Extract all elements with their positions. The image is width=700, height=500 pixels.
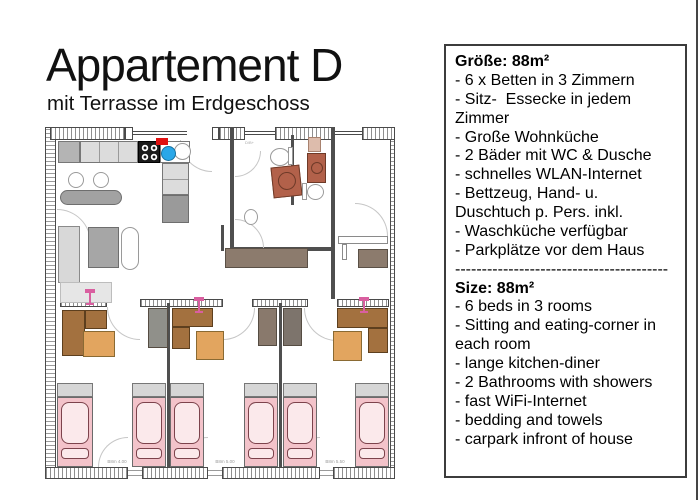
hand-basin xyxy=(244,209,258,225)
bathroom-wall xyxy=(331,127,335,299)
divider: ---------------------------------------- xyxy=(455,261,676,280)
wall xyxy=(245,131,275,135)
desk xyxy=(358,249,388,268)
door-arc xyxy=(235,151,261,177)
shower-icon xyxy=(270,165,302,199)
coffee-table xyxy=(88,227,119,268)
fridge xyxy=(162,195,189,223)
bed-symbol xyxy=(57,383,93,467)
plant-icon xyxy=(358,297,370,313)
window xyxy=(333,467,395,479)
door-threshold xyxy=(128,470,142,476)
wall-right xyxy=(390,127,395,479)
english-list-item: - bedding and towels xyxy=(455,412,676,431)
window xyxy=(50,127,125,140)
dimension-label: B8m 5.00 xyxy=(203,459,247,464)
wardrobe xyxy=(258,308,277,346)
bathroom-sink xyxy=(308,137,321,152)
english-list-item: - 6 beds in 3 rooms xyxy=(455,298,676,317)
window xyxy=(142,467,208,479)
apartment-listing: Appartement D mit Terrasse im Erdgeschos… xyxy=(0,0,700,500)
bedroom-divider-wall xyxy=(279,303,282,467)
english-list-item: - 2 Bathrooms with showers xyxy=(455,374,676,393)
wall xyxy=(332,131,362,135)
bathroom-wall xyxy=(230,127,234,251)
corner-bench xyxy=(172,327,190,349)
corridor-wall xyxy=(221,225,224,251)
floor-plan: D/B+ B8m 4.00 B8m 5.00 B8m 5.50 xyxy=(45,127,395,479)
german-list-item: - Bettzeug, Hand- u. Duschtuch p. Pers. … xyxy=(455,185,676,223)
desk xyxy=(225,248,308,268)
washbasin-icon xyxy=(161,146,176,161)
corner-bench xyxy=(368,328,388,353)
german-list-item: - Waschküche verfügbar xyxy=(455,223,676,242)
toilet-icon xyxy=(270,148,290,166)
chair xyxy=(93,172,109,188)
english-list-item: - Sitting and eating-corner in each room xyxy=(455,317,676,355)
bed-symbol xyxy=(283,383,317,467)
german-list-item: - 2 Bäder mit WC & Dusche xyxy=(455,147,676,166)
bed-symbol xyxy=(170,383,204,467)
german-list-item: - Sitz- Essecke in jedem Zimmer xyxy=(455,91,676,129)
table xyxy=(196,331,224,360)
corner-bench xyxy=(85,310,107,329)
page-title: Appartement D xyxy=(46,42,342,88)
kitchen-counter xyxy=(58,141,80,163)
window xyxy=(362,127,395,140)
side-table xyxy=(121,227,139,270)
bathroom-label: D/B+ xyxy=(245,140,254,145)
sofa xyxy=(58,226,80,283)
window xyxy=(222,467,320,479)
kitchen-cabinets xyxy=(80,141,138,163)
english-heading: Size: 88m² xyxy=(455,280,676,299)
info-panel: Größe: 88m² - 6 x Betten in 3 Zimmern - … xyxy=(444,44,687,478)
plant-icon xyxy=(193,297,205,313)
wardrobe xyxy=(283,308,302,346)
door-threshold xyxy=(320,470,333,476)
table xyxy=(333,331,362,361)
wall-left xyxy=(45,127,56,479)
wall-post xyxy=(125,127,133,140)
corner-bench xyxy=(62,310,85,356)
bed-symbol xyxy=(132,383,166,467)
window xyxy=(275,127,332,140)
english-list-item: - lange kitchen-diner xyxy=(455,355,676,374)
english-list-item: - fast WiFi-Internet xyxy=(455,393,676,412)
english-list-item: - carpark infront of house xyxy=(455,431,676,450)
german-list-item: - schnelles WLAN-Internet xyxy=(455,166,676,185)
chair xyxy=(68,172,84,188)
german-list-item: - 6 x Betten in 3 Zimmern xyxy=(455,72,676,91)
door-threshold xyxy=(208,470,222,476)
console-table xyxy=(338,236,388,244)
sink-basin xyxy=(174,143,191,160)
page-subtitle: mit Terrasse im Erdgeschoss xyxy=(47,92,310,116)
dimension-label: B8m 4.00 xyxy=(95,459,139,464)
toilet-tank xyxy=(288,147,293,165)
window xyxy=(45,467,128,479)
faucet-icon xyxy=(156,138,168,145)
door-arc xyxy=(355,203,388,236)
console-table-leg xyxy=(342,244,347,260)
bedroom-door-arc xyxy=(223,308,255,340)
german-heading: Größe: 88m² xyxy=(455,53,676,72)
wall-post xyxy=(212,127,219,140)
bed-symbol xyxy=(244,383,278,467)
table xyxy=(83,331,115,357)
plant-icon xyxy=(84,289,96,305)
image-edge-line xyxy=(696,0,698,500)
partition-wall xyxy=(140,299,223,307)
shower-icon xyxy=(307,153,326,183)
dining-table xyxy=(60,190,122,205)
german-list-item: - Parkplätze vor dem Haus xyxy=(455,242,676,261)
kitchen-cabinet-column xyxy=(162,163,189,195)
bed-symbol xyxy=(355,383,389,467)
wall xyxy=(133,131,187,135)
wardrobe xyxy=(148,308,168,348)
dimension-label: B8m 5.50 xyxy=(313,459,357,464)
german-list-item: - Große Wohnküche xyxy=(455,129,676,148)
toilet-icon xyxy=(307,184,324,200)
